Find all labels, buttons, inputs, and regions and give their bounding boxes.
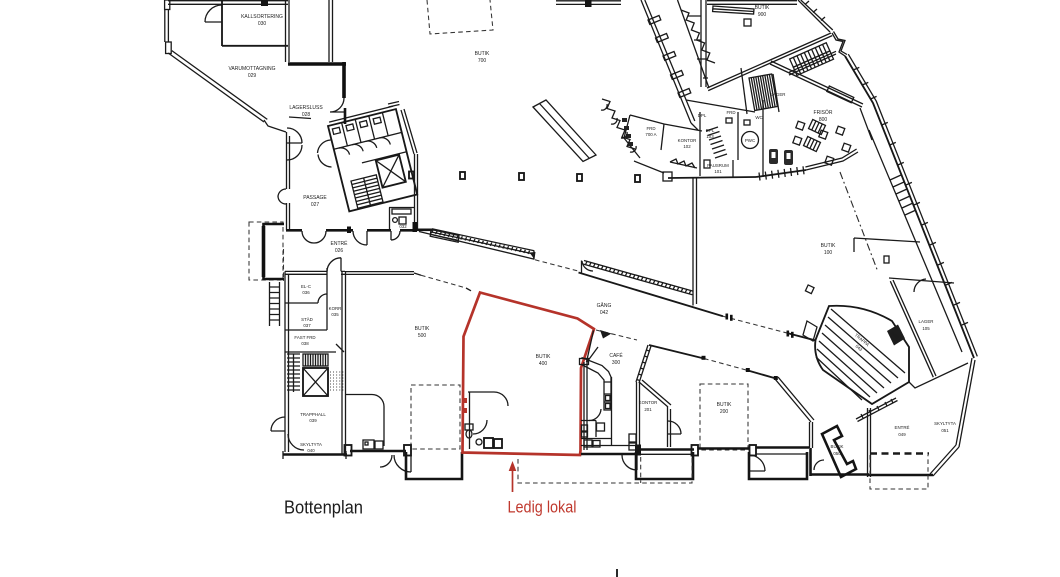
svg-text:FRD: FRD [726, 110, 735, 115]
svg-text:ENTRÉ: ENTRÉ [895, 425, 910, 430]
svg-text:029: 029 [248, 73, 257, 79]
svg-text:FRD: FRD [646, 126, 655, 131]
svg-text:BUTIK: BUTIK [415, 326, 430, 332]
svg-text:049: 049 [898, 432, 906, 437]
svg-text:KORR: KORR [329, 306, 342, 311]
svg-text:030: 030 [258, 21, 267, 27]
svg-text:Bottenplan: Bottenplan [284, 498, 363, 518]
svg-text:KONTOR: KONTOR [678, 138, 697, 143]
svg-text:037: 037 [303, 323, 311, 328]
svg-text:DPL: DPL [698, 113, 707, 118]
svg-text:BUTIK: BUTIK [717, 402, 732, 408]
svg-text:027: 027 [311, 202, 320, 208]
svg-text:038: 038 [301, 341, 309, 346]
svg-text:500: 500 [418, 333, 427, 339]
svg-text:043: 043 [855, 344, 864, 353]
svg-text:105: 105 [922, 326, 930, 331]
svg-text:Ledig lokal: Ledig lokal [508, 499, 577, 517]
svg-text:200: 200 [720, 409, 729, 415]
svg-text:ENTRÉ: ENTRÉ [331, 240, 349, 247]
svg-text:PWC: PWC [745, 138, 755, 143]
svg-text:KALLSORTERING: KALLSORTERING [241, 14, 283, 20]
svg-text:EL-C: EL-C [301, 284, 311, 289]
svg-text:101: 101 [714, 169, 722, 174]
svg-text:040: 040 [307, 448, 315, 453]
svg-text:102: 102 [683, 144, 691, 149]
svg-text:KONTOR: KONTOR [639, 400, 658, 405]
svg-text:TRAPPHALL: TRAPPHALL [300, 412, 326, 417]
svg-text:VARUMOTTAGNING: VARUMOTTAGNING [228, 66, 275, 72]
svg-text:FAST FRD: FAST FRD [294, 335, 315, 340]
svg-text:201: 201 [644, 407, 652, 412]
svg-text:028: 028 [302, 112, 311, 118]
svg-text:LAGER: LAGER [771, 92, 786, 97]
svg-text:032: 032 [399, 224, 407, 229]
svg-text:GÅNG: GÅNG [597, 302, 612, 309]
svg-text:035: 035 [331, 312, 339, 317]
svg-text:CAFÉ: CAFÉ [609, 352, 623, 359]
svg-text:042: 042 [600, 310, 609, 316]
svg-text:FRISÖR: FRISÖR [814, 109, 833, 116]
svg-text:BUTIK: BUTIK [821, 243, 836, 249]
svg-text:LAGER: LAGER [919, 319, 934, 324]
svg-text:051: 051 [941, 428, 949, 433]
svg-text:900: 900 [758, 12, 767, 18]
svg-text:400: 400 [539, 361, 548, 367]
svg-text:050: 050 [833, 451, 841, 456]
svg-text:BUTIK: BUTIK [536, 354, 551, 360]
svg-text:300: 300 [612, 360, 621, 366]
svg-text:BUTIK: BUTIK [831, 444, 844, 449]
svg-text:039: 039 [309, 418, 317, 423]
svg-text:BUTIK: BUTIK [475, 51, 490, 57]
svg-text:800: 800 [819, 117, 828, 123]
svg-text:036: 036 [302, 290, 310, 295]
svg-text:700: 700 [478, 58, 487, 64]
svg-text:WC: WC [755, 115, 762, 120]
svg-text:SKYLTYTA: SKYLTYTA [300, 442, 322, 447]
svg-text:STÄD: STÄD [301, 317, 313, 322]
svg-text:100: 100 [824, 250, 833, 256]
svg-text:PASSAGE: PASSAGE [303, 195, 327, 201]
svg-text:SKYLTYTA: SKYLTYTA [934, 421, 956, 426]
svg-text:700 A: 700 A [645, 132, 656, 137]
svg-text:LAGERSLUSS: LAGERSLUSS [289, 105, 323, 111]
svg-text:BUTIK: BUTIK [755, 5, 770, 11]
svg-text:026: 026 [335, 248, 344, 254]
